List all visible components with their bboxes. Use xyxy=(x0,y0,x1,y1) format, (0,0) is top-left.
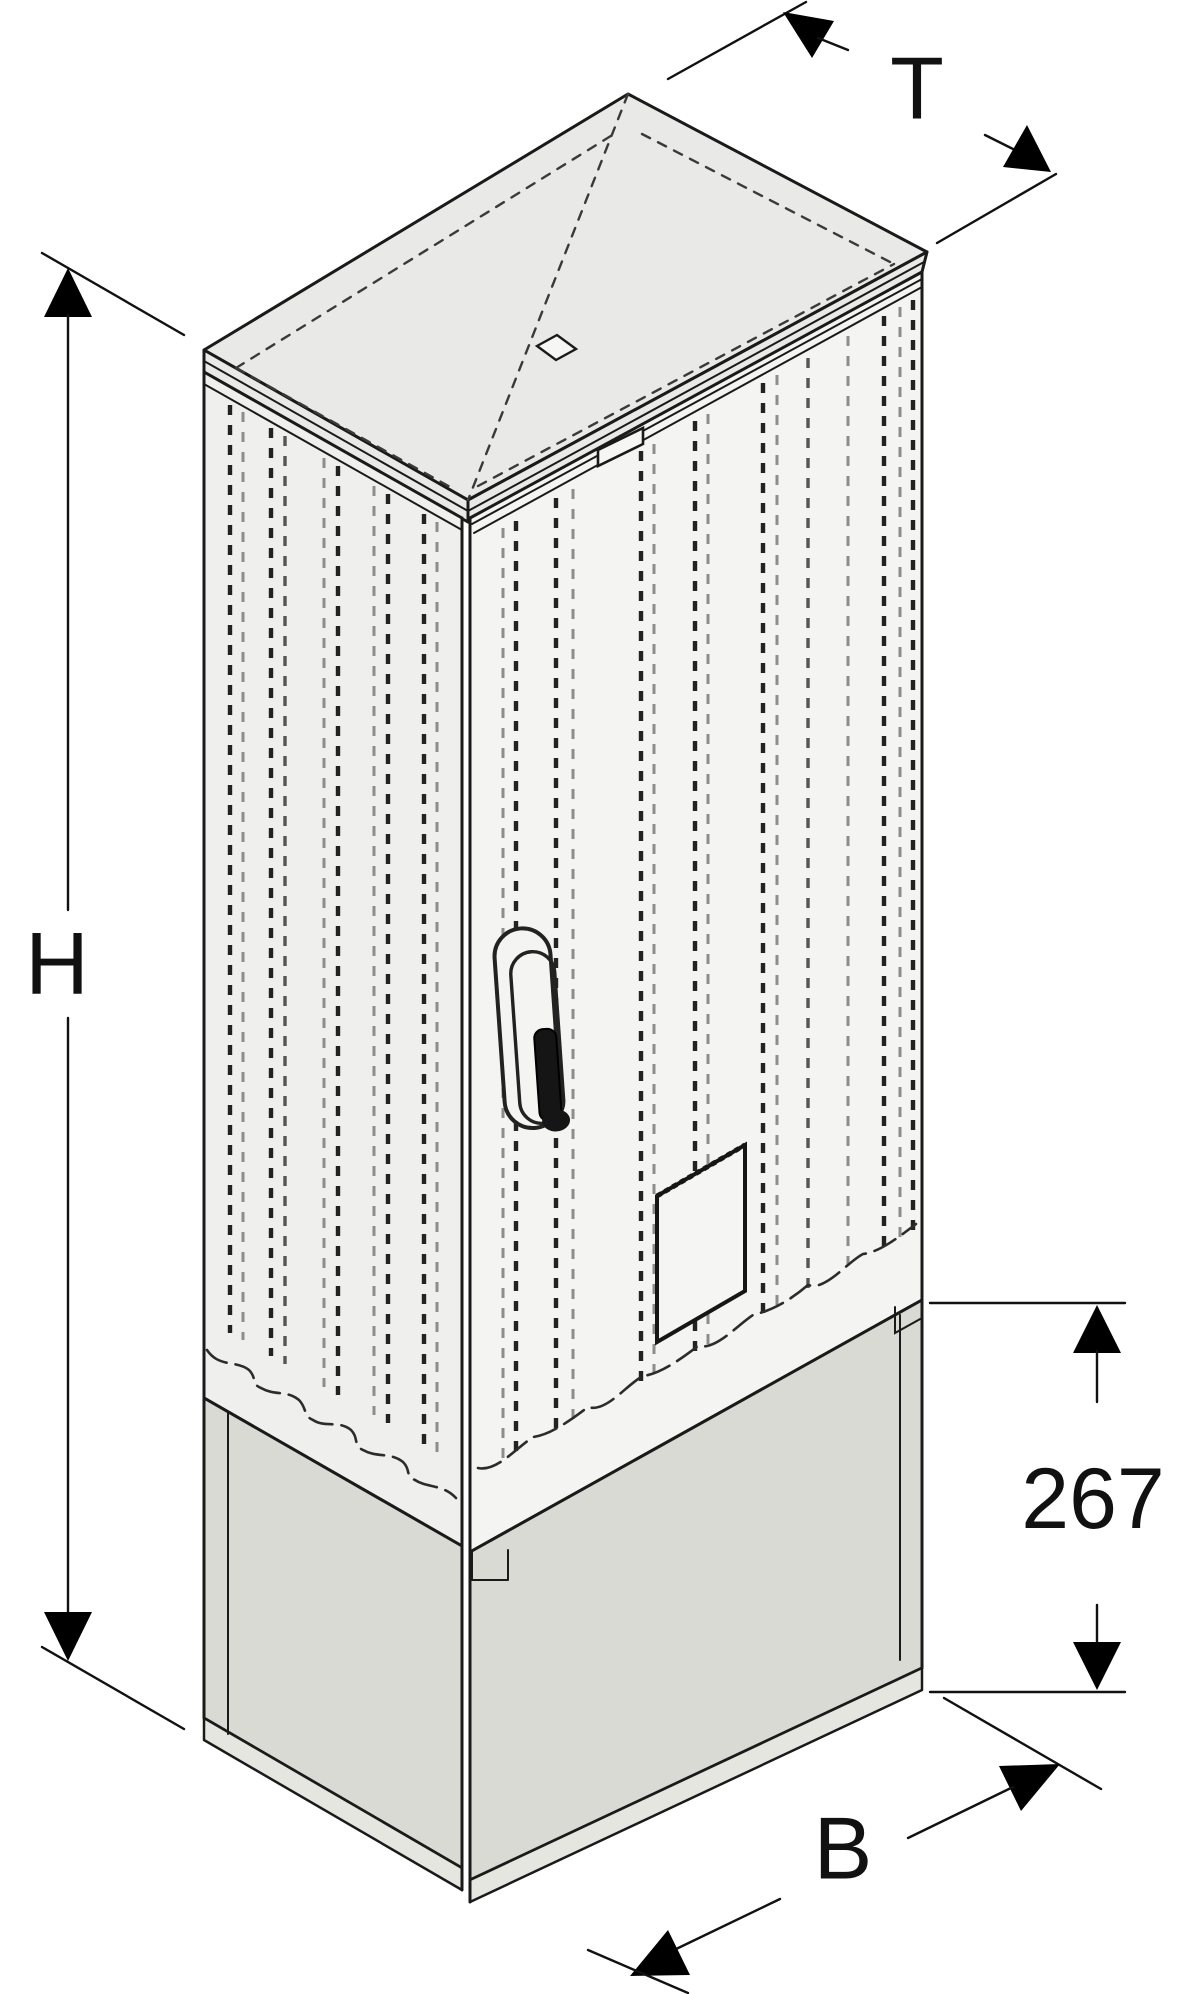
depth-ext-line-right xyxy=(937,174,1056,243)
dimension-height: H xyxy=(25,253,184,1729)
width-dim-line-lower xyxy=(672,1899,780,1951)
arrow-down-icon xyxy=(1073,1642,1121,1690)
arrow-up-icon xyxy=(44,268,92,317)
height-ext-tick-bottom xyxy=(42,1647,184,1729)
arrow-down-left-icon xyxy=(783,12,834,58)
arrow-up-right-icon xyxy=(999,1764,1060,1811)
height-label: H xyxy=(25,914,89,1013)
width-dim-line-upper xyxy=(908,1787,1013,1838)
dimension-plinth-height: 267 xyxy=(930,1303,1165,1692)
plinth-height-label: 267 xyxy=(1021,1451,1165,1547)
arrow-up-icon xyxy=(1073,1305,1121,1353)
arrow-down-left-icon xyxy=(630,1930,690,1976)
depth-label: T xyxy=(890,39,944,138)
depth-dim-stub-right xyxy=(985,135,1013,149)
width-label: B xyxy=(814,1799,873,1898)
diagram-canvas: H T 267 B xyxy=(0,0,1200,1994)
depth-dim-stub-left xyxy=(818,38,848,50)
enclosure-dimension-diagram: H T 267 B xyxy=(0,0,1200,1994)
